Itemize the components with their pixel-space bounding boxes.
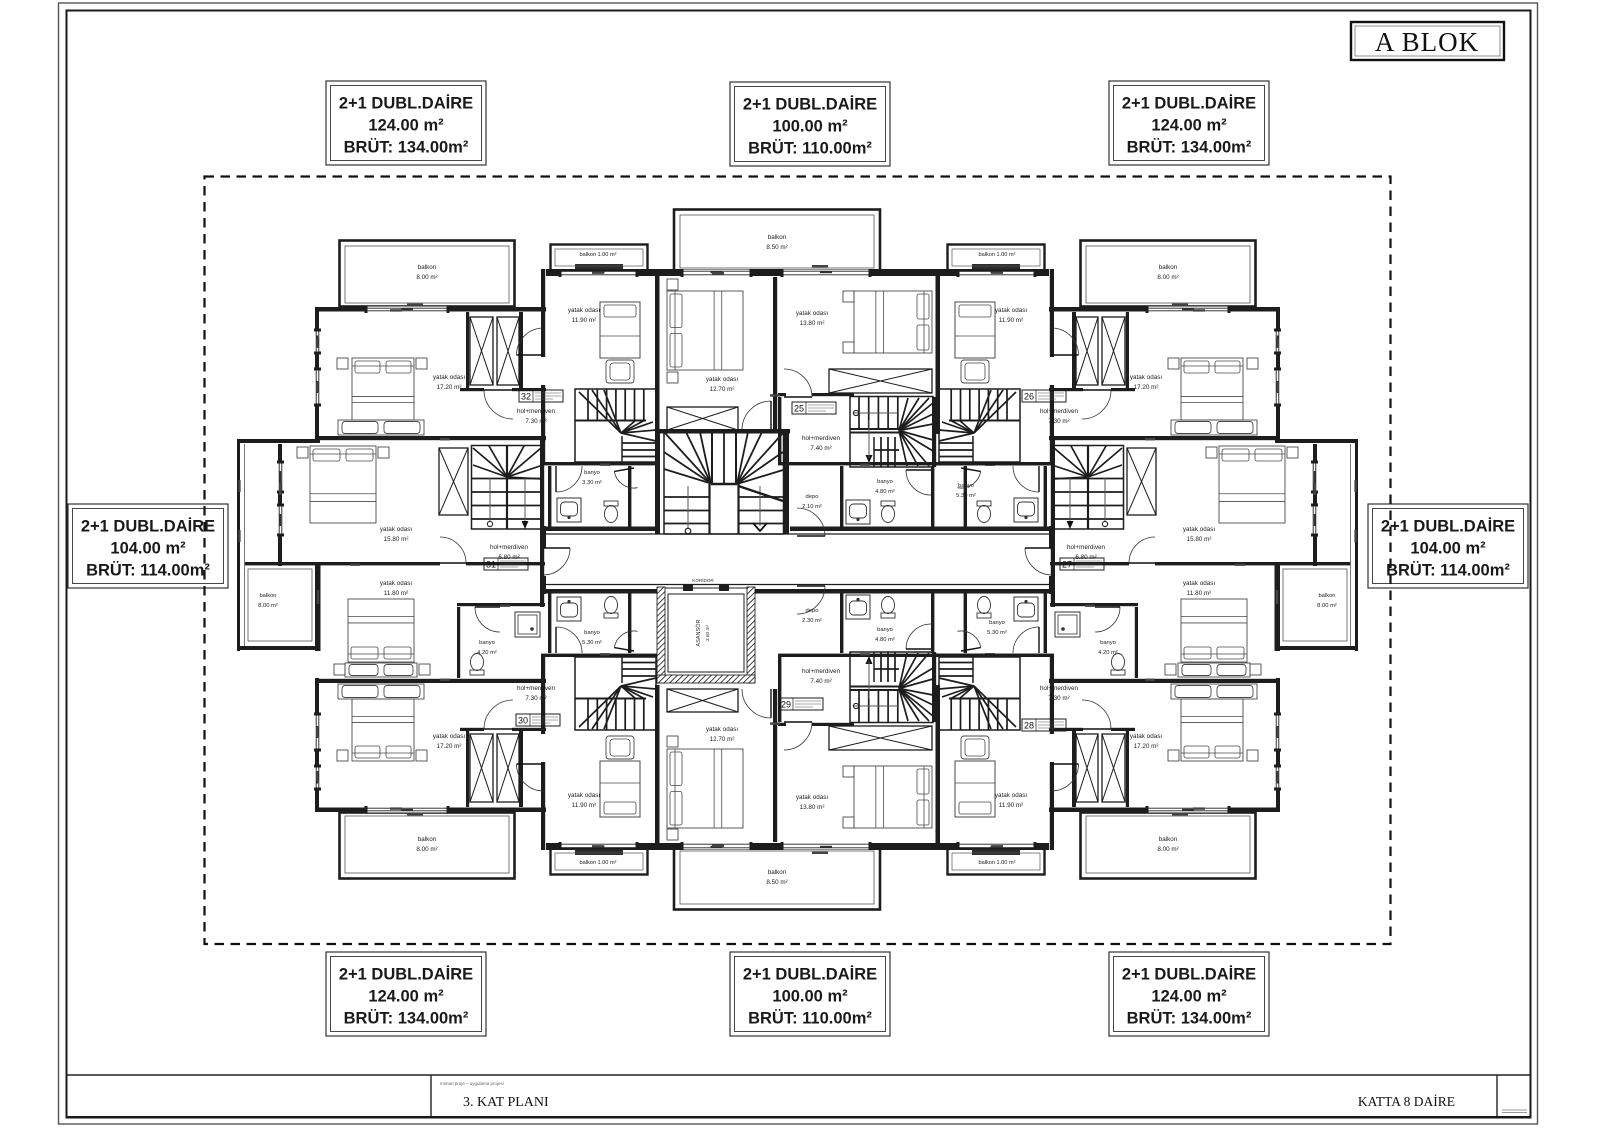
- svg-text:2+1 DUBL.DAİRE: 2+1 DUBL.DAİRE: [81, 518, 215, 536]
- svg-text:3.60 m²: 3.60 m²: [705, 624, 711, 641]
- svg-text:banyo: banyo: [584, 630, 600, 636]
- svg-text:yatak odası: yatak odası: [433, 374, 465, 381]
- svg-text:124.00 m²: 124.00 m²: [1151, 117, 1227, 135]
- svg-text:mimari proje – uygulama projes: mimari proje – uygulama projesi: [440, 1081, 504, 1086]
- svg-text:balkon: balkon: [259, 593, 276, 599]
- svg-text:hol+merdiven: hol+merdiven: [802, 435, 840, 442]
- svg-text:31: 31: [486, 560, 496, 570]
- svg-text:BRÜT: 134.00m²: BRÜT: 134.00m²: [1127, 138, 1252, 157]
- svg-text:balkon: balkon: [1318, 593, 1335, 599]
- svg-text:hol+merdiven: hol+merdiven: [802, 668, 840, 675]
- svg-text:balkon: balkon: [1159, 836, 1178, 843]
- svg-text:8.00 m²: 8.00 m²: [416, 274, 437, 281]
- svg-text:hol+merdiven: hol+merdiven: [1040, 408, 1078, 415]
- svg-text:hol+merdiven: hol+merdiven: [517, 685, 555, 692]
- svg-text:8.00 m²: 8.00 m²: [1317, 603, 1337, 609]
- svg-text:depo: depo: [806, 608, 819, 614]
- svg-text:banyo: banyo: [877, 627, 893, 633]
- svg-text:8.00 m²: 8.00 m²: [416, 846, 437, 853]
- svg-text:2+1 DUBL.DAİRE: 2+1 DUBL.DAİRE: [339, 95, 473, 113]
- svg-text:8.50 m²: 8.50 m²: [766, 244, 787, 251]
- svg-text:4.80 m²: 4.80 m²: [875, 637, 895, 643]
- svg-text:4.20 m²: 4.20 m²: [477, 650, 497, 656]
- svg-text:BRÜT: 110.00m²: BRÜT: 110.00m²: [748, 139, 872, 158]
- svg-text:12.70 m²: 12.70 m²: [710, 736, 735, 743]
- svg-text:KORİDOR: KORİDOR: [692, 577, 714, 583]
- svg-text:124.00 m²: 124.00 m²: [368, 117, 444, 135]
- svg-text:13.80 m²: 13.80 m²: [800, 804, 825, 811]
- svg-text:yatak odası: yatak odası: [995, 307, 1027, 314]
- svg-text:12.70 m²: 12.70 m²: [710, 386, 735, 393]
- svg-text:yatak odası: yatak odası: [995, 792, 1027, 799]
- svg-text:7.30 m²: 7.30 m²: [525, 695, 546, 702]
- svg-text:28: 28: [1024, 721, 1034, 731]
- svg-text:7.30 m²: 7.30 m²: [1048, 695, 1069, 702]
- svg-text:hol+merdiven: hol+merdiven: [490, 544, 528, 551]
- svg-text:balkon: balkon: [768, 869, 787, 876]
- svg-text:104.00 m²: 104.00 m²: [1410, 540, 1486, 558]
- svg-text:100.00 m²: 100.00 m²: [772, 988, 848, 1006]
- svg-text:banyo: banyo: [989, 620, 1005, 626]
- svg-text:11.90 m²: 11.90 m²: [572, 802, 596, 809]
- svg-text:ASANSÖR: ASANSÖR: [695, 620, 702, 647]
- svg-text:17.20 m²: 17.20 m²: [437, 743, 462, 750]
- svg-text:7.30 m²: 7.30 m²: [525, 418, 546, 425]
- svg-text:yatak odası: yatak odası: [1183, 526, 1215, 533]
- svg-text:yatak odası: yatak odası: [568, 307, 600, 314]
- svg-text:17.20 m²: 17.20 m²: [437, 384, 462, 391]
- svg-text:yatak odası: yatak odası: [1130, 733, 1162, 740]
- svg-text:104.00 m²: 104.00 m²: [110, 540, 186, 558]
- svg-text:banyo: banyo: [1100, 640, 1116, 646]
- svg-text:26: 26: [1024, 392, 1034, 402]
- svg-text:15.80 m²: 15.80 m²: [384, 536, 409, 543]
- svg-text:17.20 m²: 17.20 m²: [1134, 743, 1159, 750]
- svg-text:2+1 DUBL.DAİRE: 2+1 DUBL.DAİRE: [339, 966, 473, 984]
- svg-text:100.00 m²: 100.00 m²: [772, 118, 848, 136]
- svg-text:yatak odası: yatak odası: [706, 726, 738, 733]
- svg-text:11.80 m²: 11.80 m²: [1187, 590, 1211, 597]
- svg-text:17.20 m²: 17.20 m²: [1134, 384, 1159, 391]
- svg-text:5.30 m²: 5.30 m²: [956, 493, 976, 499]
- svg-text:7.30 m²: 7.30 m²: [1048, 418, 1069, 425]
- svg-text:BRÜT: 134.00m²: BRÜT: 134.00m²: [344, 138, 469, 157]
- svg-text:8.50 m²: 8.50 m²: [766, 879, 787, 886]
- svg-text:yatak odası: yatak odası: [796, 794, 828, 801]
- svg-text:124.00 m²: 124.00 m²: [1151, 988, 1227, 1006]
- svg-text:11.90 m²: 11.90 m²: [572, 317, 596, 324]
- svg-text:yatak odası: yatak odası: [796, 310, 828, 317]
- svg-text:yatak odası: yatak odası: [706, 376, 738, 383]
- svg-text:BRÜT: 134.00m²: BRÜT: 134.00m²: [344, 1009, 469, 1028]
- svg-text:yatak odası: yatak odası: [1130, 374, 1162, 381]
- svg-text:5.30 m²: 5.30 m²: [987, 630, 1007, 636]
- svg-text:11.80 m²: 11.80 m²: [384, 590, 408, 597]
- svg-text:yatak odası: yatak odası: [380, 526, 412, 533]
- svg-text:balkon: balkon: [418, 264, 437, 271]
- svg-text:11.90 m²: 11.90 m²: [999, 802, 1023, 809]
- svg-text:3. KAT PLANI: 3. KAT PLANI: [463, 1095, 549, 1110]
- svg-text:2+1 DUBL.DAİRE: 2+1 DUBL.DAİRE: [743, 966, 877, 984]
- svg-text:2+1 DUBL.DAİRE: 2+1 DUBL.DAİRE: [1122, 95, 1256, 113]
- svg-text:hol+merdiven: hol+merdiven: [1067, 544, 1105, 551]
- svg-text:hol+merdiven: hol+merdiven: [517, 408, 555, 415]
- svg-text:2.10 m²: 2.10 m²: [802, 504, 822, 510]
- svg-text:yatak odası: yatak odası: [1183, 580, 1215, 587]
- svg-text:yatak odası: yatak odası: [568, 792, 600, 799]
- svg-text:yatak odası: yatak odası: [433, 733, 465, 740]
- svg-text:29: 29: [781, 700, 791, 710]
- svg-text:8.00 m²: 8.00 m²: [1157, 274, 1178, 281]
- svg-text:2+1 DUBL.DAİRE: 2+1 DUBL.DAİRE: [1381, 518, 1515, 536]
- svg-text:BRÜT: 114.00m²: BRÜT: 114.00m²: [1386, 561, 1510, 580]
- svg-text:balkon: balkon: [768, 234, 787, 241]
- svg-text:13.80 m²: 13.80 m²: [800, 320, 825, 327]
- svg-text:8.00 m²: 8.00 m²: [1157, 846, 1178, 853]
- svg-text:depo: depo: [806, 494, 819, 500]
- svg-text:balkon 1.00 m²: balkon 1.00 m²: [978, 252, 1015, 258]
- svg-text:BRÜT: 110.00m²: BRÜT: 110.00m²: [748, 1009, 872, 1028]
- svg-text:8.00 m²: 8.00 m²: [258, 603, 278, 609]
- svg-text:A BLOK: A BLOK: [1375, 27, 1479, 57]
- svg-text:2+1 DUBL.DAİRE: 2+1 DUBL.DAİRE: [743, 96, 877, 114]
- svg-text:balkon: balkon: [418, 836, 437, 843]
- svg-text:4.20 m²: 4.20 m²: [1098, 650, 1118, 656]
- svg-text:32: 32: [521, 392, 531, 402]
- svg-text:banyo: banyo: [958, 483, 974, 489]
- svg-text:yatak odası: yatak odası: [380, 580, 412, 587]
- svg-text:balkon: balkon: [1159, 264, 1178, 271]
- svg-text:25: 25: [794, 404, 804, 414]
- svg-text:2.30 m²: 2.30 m²: [802, 618, 822, 624]
- svg-text:2+1 DUBL.DAİRE: 2+1 DUBL.DAİRE: [1122, 966, 1256, 984]
- svg-text:7.40 m²: 7.40 m²: [810, 678, 831, 685]
- svg-text:balkon 1.00 m²: balkon 1.00 m²: [579, 860, 616, 866]
- svg-text:11.90 m²: 11.90 m²: [999, 317, 1023, 324]
- svg-text:hol+merdiven: hol+merdiven: [1040, 685, 1078, 692]
- svg-text:banyo: banyo: [584, 470, 600, 476]
- svg-text:5.30 m²: 5.30 m²: [582, 640, 602, 646]
- svg-text:balkon 1.00 m²: balkon 1.00 m²: [978, 860, 1015, 866]
- svg-text:BRÜT: 114.00m²: BRÜT: 114.00m²: [86, 561, 210, 580]
- svg-text:balkon 1.00 m²: balkon 1.00 m²: [579, 252, 616, 258]
- svg-text:banyo: banyo: [877, 479, 893, 485]
- svg-text:BRÜT: 134.00m²: BRÜT: 134.00m²: [1127, 1009, 1252, 1028]
- svg-text:4.80 m²: 4.80 m²: [875, 489, 895, 495]
- svg-text:30: 30: [518, 716, 528, 726]
- svg-text:124.00 m²: 124.00 m²: [368, 988, 444, 1006]
- svg-text:KATTA 8 DAİRE: KATTA 8 DAİRE: [1358, 1094, 1455, 1109]
- svg-text:27: 27: [1062, 560, 1072, 570]
- svg-text:15.80 m²: 15.80 m²: [1187, 536, 1212, 543]
- svg-text:7.40 m²: 7.40 m²: [810, 445, 831, 452]
- svg-text:3.30 m²: 3.30 m²: [582, 480, 602, 486]
- svg-text:banyo: banyo: [479, 640, 495, 646]
